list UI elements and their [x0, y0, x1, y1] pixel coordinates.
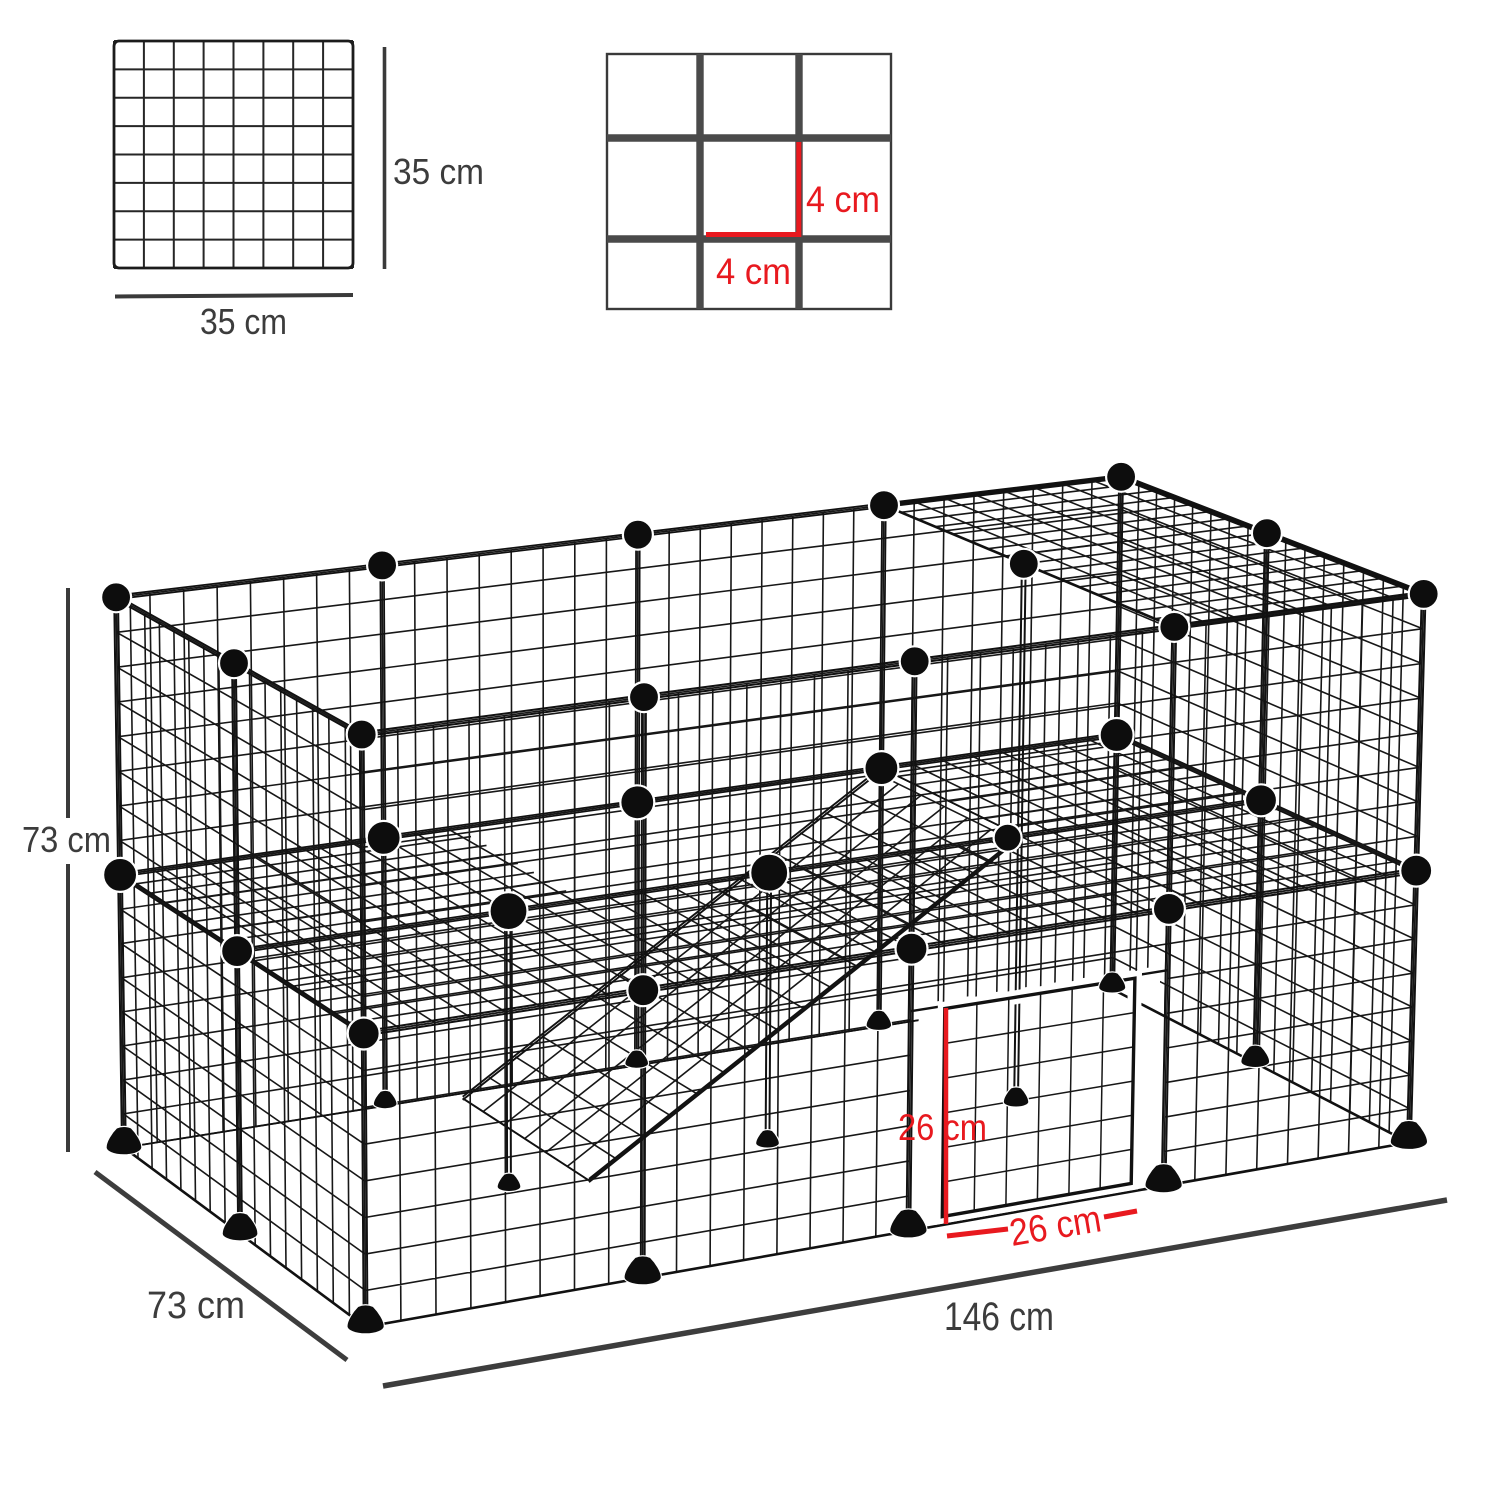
svg-text:146 cm: 146 cm: [944, 1295, 1054, 1339]
svg-text:4 cm: 4 cm: [806, 179, 880, 220]
svg-text:73 cm: 73 cm: [147, 1285, 245, 1327]
svg-text:26 cm: 26 cm: [898, 1107, 987, 1148]
svg-text:35 cm: 35 cm: [393, 151, 484, 192]
svg-text:35 cm: 35 cm: [200, 301, 287, 342]
svg-text:73 cm: 73 cm: [22, 819, 111, 860]
svg-text:4 cm: 4 cm: [716, 251, 791, 292]
